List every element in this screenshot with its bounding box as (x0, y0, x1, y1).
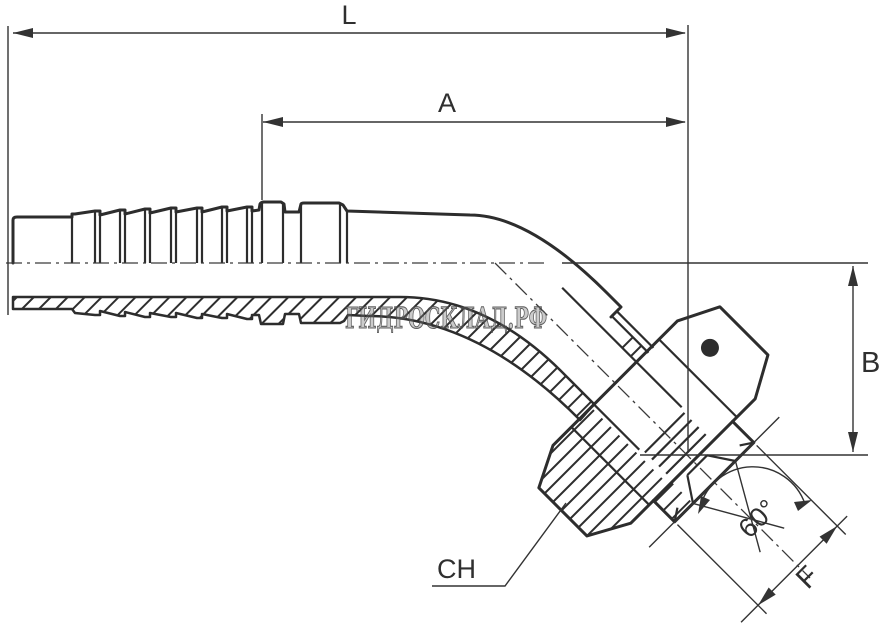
dim-B-label: B (861, 347, 880, 379)
dimension-A: A (262, 88, 686, 200)
dim-B-arrow-bottom (848, 432, 858, 452)
cone-angle-arc (700, 467, 805, 507)
hex-size-callout: CH (432, 503, 566, 586)
cone-angle-label: 60° (733, 494, 783, 544)
elbow-leg-and-nut (450, 218, 887, 626)
dim-B-arrow-top (848, 266, 858, 286)
dim-A-arrow-right (666, 117, 686, 127)
fitting-technical-drawing: L A B CH 60° F ГИДРОСКЛАД.РФ (0, 0, 887, 626)
dimension-L: L (8, 0, 686, 315)
dim-A-label: A (438, 88, 456, 118)
nut-marking-dot (697, 335, 722, 360)
dim-L-label: L (341, 0, 356, 30)
watermark-text: ГИДРОСКЛАД.РФ (345, 301, 547, 335)
cone-angle-arrow-right (794, 500, 812, 511)
dim-A-arrow-left (263, 117, 283, 127)
cone-angle-annotation: 60° (698, 467, 812, 544)
leg-bore-line-upper (562, 288, 636, 362)
dim-L-arrow-left (13, 28, 33, 38)
thread-size-label: F (790, 560, 825, 595)
ch-label: CH (437, 554, 476, 584)
drawing-canvas: L A B CH 60° F ГИДРОСКЛАД.РФ (0, 0, 887, 626)
dim-L-arrow-right (666, 28, 686, 38)
